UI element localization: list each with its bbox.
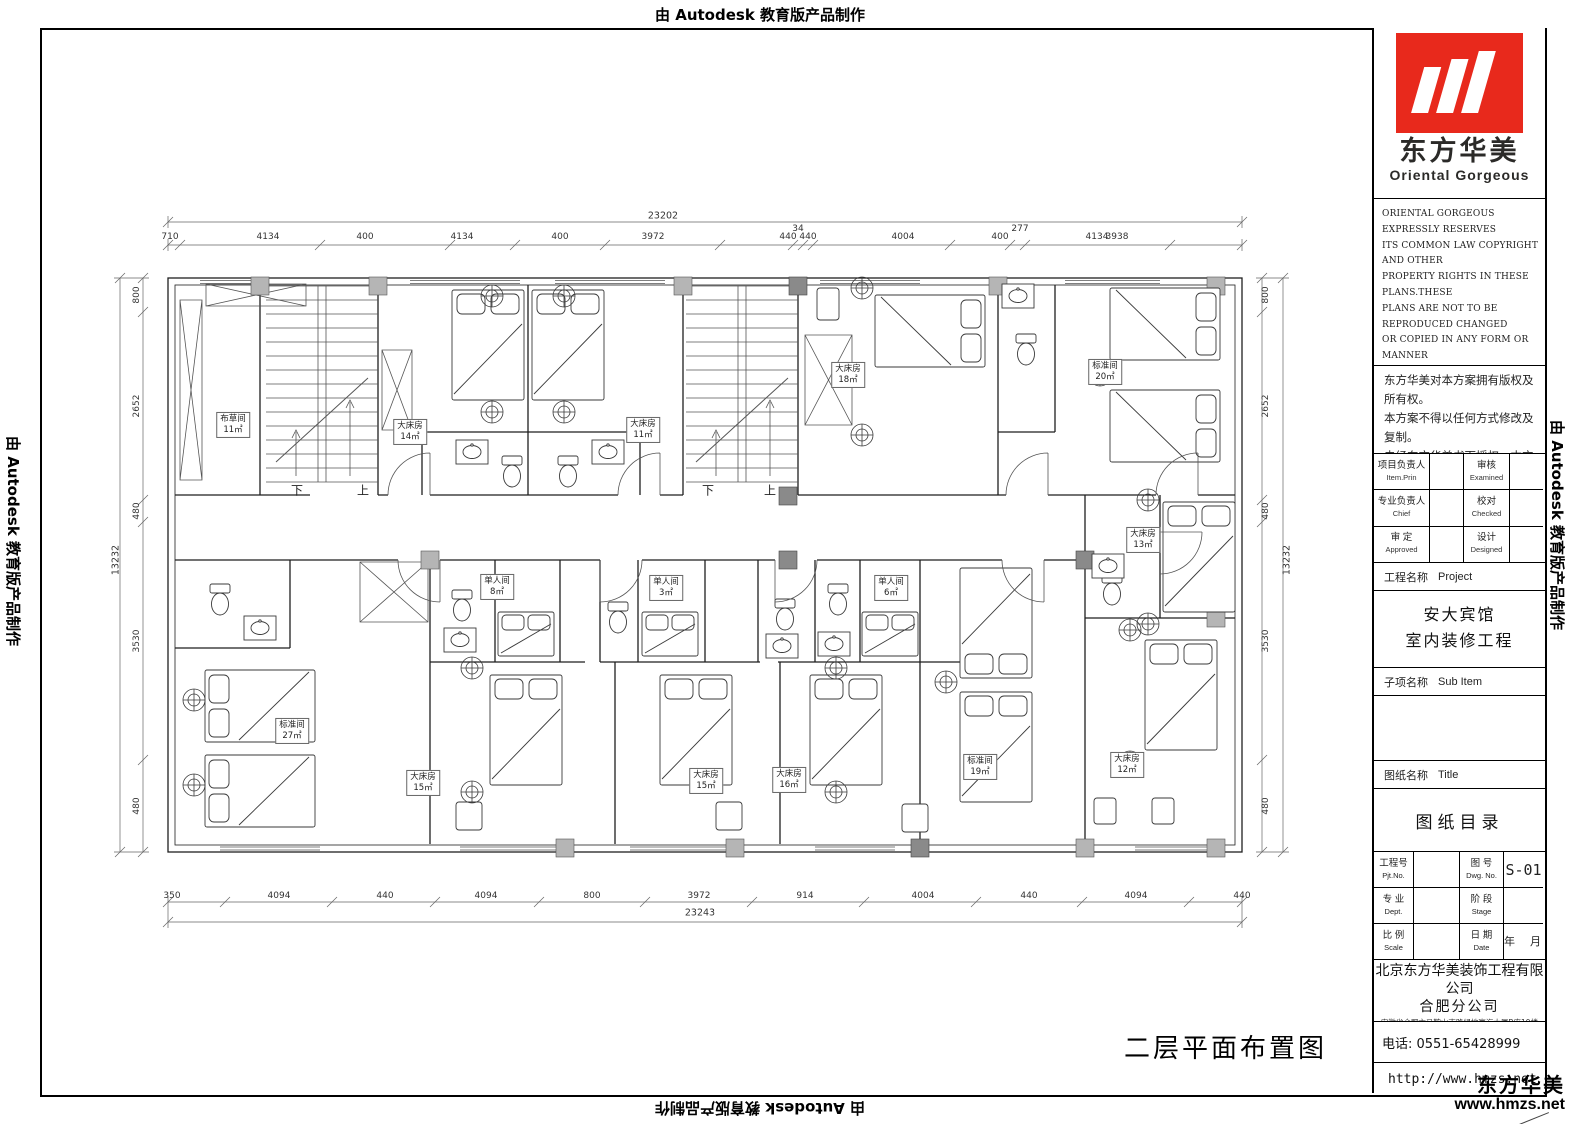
project-name: 安大宾馆 室内装修工程 bbox=[1374, 591, 1545, 668]
copyright-line-en: ORIENTAL GORGEOUS EXPRESSLY RESERVES bbox=[1382, 207, 1539, 239]
copyright-line-cn: 东方华美对本方案拥有版权及所有权。 bbox=[1384, 372, 1539, 410]
company-branch: 合肥分公司 bbox=[1374, 999, 1545, 1017]
field-date-value: 年 月 bbox=[1504, 924, 1543, 959]
copyright-notice-cn: 东方华美对本方案拥有版权及所有权。本方案不得以任何方式修改及复制。未经东方华美书… bbox=[1374, 366, 1545, 454]
field-approved: 审 定Approved bbox=[1374, 527, 1430, 562]
field-chief: 专业负责人Chief bbox=[1374, 490, 1430, 526]
field-examined: 审核Examined bbox=[1464, 454, 1510, 490]
field-pjt-no-value bbox=[1414, 852, 1460, 888]
subitem-label-row: 子项名称Sub Item bbox=[1374, 668, 1545, 696]
personnel-table: 项目负责人Item.Prin 审核Examined 专业负责人Chief 校对C… bbox=[1374, 454, 1545, 563]
copyright-line-en: PROPERTY RIGHTS IN THESE PLANS.THESE bbox=[1382, 270, 1539, 302]
field-item-prin: 项目负责人Item.Prin bbox=[1374, 454, 1430, 490]
sheet-info-grid: 工程号Pjt.No. 图 号Dwg. No. S-01 专 业Dept. 阶 段… bbox=[1374, 852, 1545, 960]
subitem-value bbox=[1374, 696, 1545, 761]
drawing-sheet: 由 Autodesk 教育版产品制作 由 Autodesk 教育版产品制作 由 … bbox=[0, 0, 1569, 1124]
field-dwg-no: 图 号Dwg. No. bbox=[1460, 852, 1504, 888]
field-scale: 比 例Scale bbox=[1374, 924, 1414, 959]
field-stage: 阶 段Stage bbox=[1460, 888, 1504, 924]
autodesk-watermark-bottom: 由 Autodesk 教育版产品制作 bbox=[655, 1098, 865, 1119]
field-item-prin-value bbox=[1430, 454, 1464, 490]
copyright-line-en: ITS COMMON LAW COPYRIGHT AND OTHER bbox=[1382, 239, 1539, 271]
field-designed-value bbox=[1510, 527, 1543, 562]
copyright-notice-en: ORIENTAL GORGEOUS EXPRESSLY RESERVESITS … bbox=[1374, 199, 1545, 366]
footer-brand: 东方华美 www.hmzs.net bbox=[1440, 1076, 1565, 1114]
copyright-line-en: PLANS ARE NOT TO BE REPRODUCED CHANGED bbox=[1382, 302, 1539, 334]
oriental-gorgeous-logo-icon bbox=[1396, 33, 1523, 133]
field-chief-value bbox=[1430, 490, 1464, 526]
brand-name-cn: 东方华美 bbox=[1374, 135, 1545, 167]
autodesk-watermark-top: 由 Autodesk 教育版产品制作 bbox=[655, 4, 865, 25]
company-info: 北京东方华美装饰工程有限公司 合肥分公司 安徽省合肥市马鞍山南路绿地赢海大厦B座… bbox=[1374, 960, 1545, 1022]
field-stage-value bbox=[1504, 888, 1543, 924]
field-examined-value bbox=[1510, 454, 1543, 490]
sheet-label-row: 图纸名称Title bbox=[1374, 761, 1545, 789]
company-phone: 电话: 0551-65428999 bbox=[1374, 1022, 1545, 1063]
company-name: 北京东方华美装饰工程有限公司 bbox=[1374, 963, 1545, 999]
company-logo: 东方华美 Oriental Gorgeous bbox=[1374, 28, 1545, 199]
footer-brand-name: 东方华美 bbox=[1440, 1076, 1565, 1097]
autodesk-watermark-left: 由 Autodesk 教育版产品制作 bbox=[3, 436, 24, 646]
brand-name-en: Oriental Gorgeous bbox=[1374, 167, 1545, 183]
copyright-line-en: OR COPIED IN ANY FORM OR MANNER bbox=[1382, 333, 1539, 365]
autodesk-watermark-right: 由 Autodesk 教育版产品制作 bbox=[1547, 420, 1568, 630]
plan-title: 二层平面布置图 bbox=[1124, 1028, 1327, 1065]
title-block: 东方华美 Oriental Gorgeous ORIENTAL GORGEOUS… bbox=[1372, 28, 1545, 1093]
field-approved-value bbox=[1430, 527, 1464, 562]
field-scale-value bbox=[1414, 924, 1460, 959]
sheet-name: 图纸目录 bbox=[1374, 789, 1545, 852]
field-date: 日 期Date bbox=[1460, 924, 1504, 959]
field-designed: 设计Designed bbox=[1464, 527, 1510, 562]
drawing-number: S-01 bbox=[1504, 852, 1543, 888]
project-label-row: 工程名称Project bbox=[1374, 563, 1545, 591]
field-checked-value bbox=[1510, 490, 1543, 526]
field-checked: 校对Checked bbox=[1464, 490, 1510, 526]
field-dept: 专 业Dept. bbox=[1374, 888, 1414, 924]
copyright-line-cn: 本方案不得以任何方式修改及复制。 bbox=[1384, 410, 1539, 448]
field-dept-value bbox=[1414, 888, 1460, 924]
floor-plan-drawing bbox=[100, 200, 1290, 930]
field-pjt-no: 工程号Pjt.No. bbox=[1374, 852, 1414, 888]
footer-brand-url: www.hmzs.net bbox=[1440, 1097, 1565, 1114]
